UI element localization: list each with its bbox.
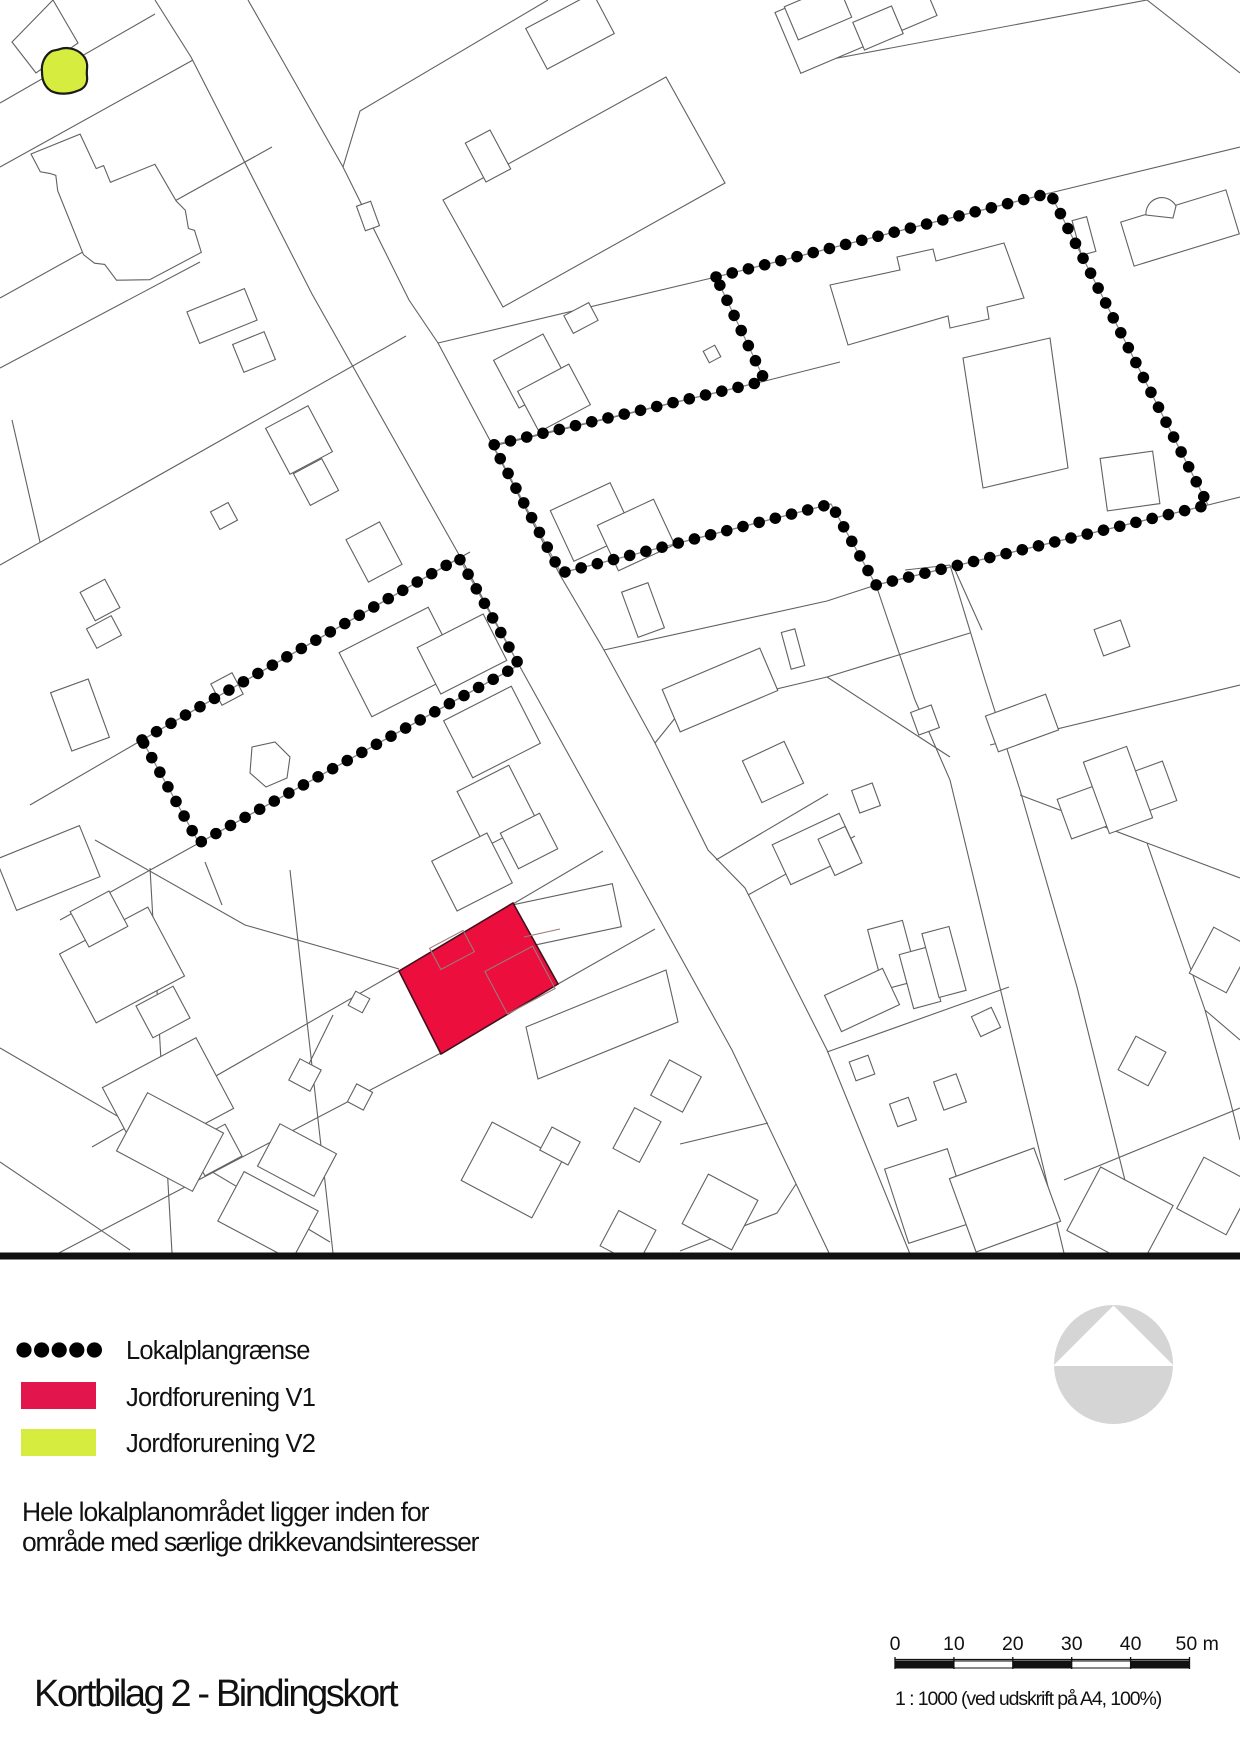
svg-text:1 : 1000 (ved udskrift på A4,: 1 : 1000 (ved udskrift på A4, 100%) <box>895 1688 1162 1710</box>
svg-text:Jordforurening V1: Jordforurening V1 <box>126 1384 315 1412</box>
svg-text:40: 40 <box>1120 1633 1142 1655</box>
svg-text:Kortbilag 2 - Bindingskort: Kortbilag 2 - Bindingskort <box>34 1673 399 1715</box>
svg-text:område med særlige drikkevands: område med særlige drikkevandsinteresser <box>22 1527 480 1557</box>
svg-text:Jordforurening V2: Jordforurening V2 <box>126 1430 315 1458</box>
svg-text:30: 30 <box>1061 1633 1083 1655</box>
svg-text:Lokalplangrænse: Lokalplangrænse <box>126 1337 310 1365</box>
svg-text:50 m: 50 m <box>1176 1633 1219 1655</box>
svg-text:0: 0 <box>890 1633 901 1655</box>
svg-text:20: 20 <box>1002 1633 1024 1655</box>
svg-text:10: 10 <box>943 1633 965 1655</box>
svg-text:Hele lokalplanområdet ligger i: Hele lokalplanområdet ligger inden for <box>22 1497 430 1527</box>
